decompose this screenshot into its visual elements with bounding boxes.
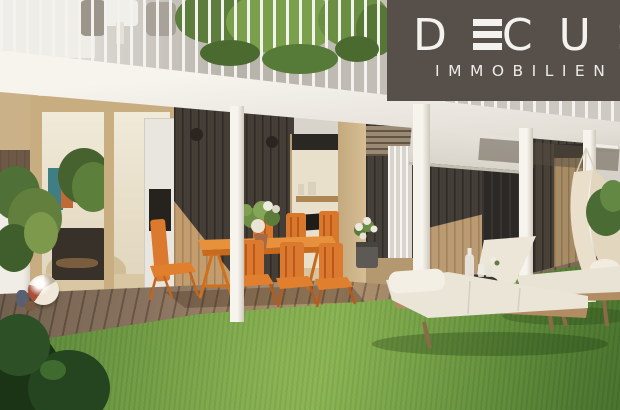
- lounger-pillow: [388, 268, 445, 294]
- terrace-shrub-right: [600, 180, 620, 212]
- logo-brand: DCUS: [413, 10, 620, 61]
- logo-subtitle: IMMOBILIEN: [435, 62, 613, 80]
- hanging-plant: [24, 212, 58, 254]
- lounger-shadow: [372, 332, 608, 356]
- stylized-e-glyph: [473, 19, 502, 50]
- toy-figure: [25, 301, 35, 311]
- drinking-glass: [486, 265, 492, 277]
- property-photo: DCUS IMMOBILIEN: [0, 0, 620, 410]
- shrub-highlight: [40, 360, 66, 380]
- carafe-neck: [468, 248, 472, 256]
- drinking-glass: [478, 264, 484, 277]
- logo-watermark: DCUS IMMOBILIEN: [387, 0, 620, 101]
